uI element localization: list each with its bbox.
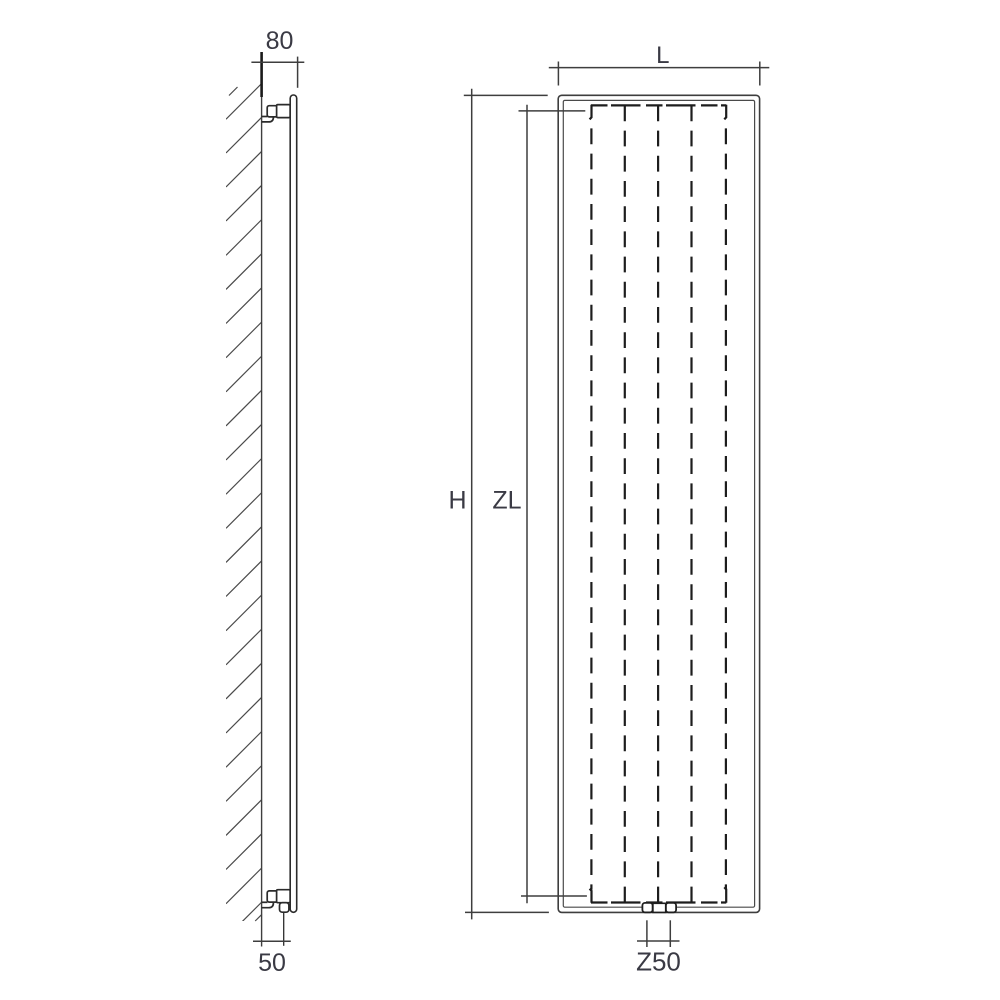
- svg-text:H: H: [448, 487, 466, 515]
- svg-text:80: 80: [266, 27, 294, 55]
- svg-text:50: 50: [258, 949, 286, 977]
- svg-text:L: L: [656, 42, 669, 69]
- svg-text:ZL: ZL: [492, 487, 521, 515]
- svg-text:Z50: Z50: [636, 947, 681, 977]
